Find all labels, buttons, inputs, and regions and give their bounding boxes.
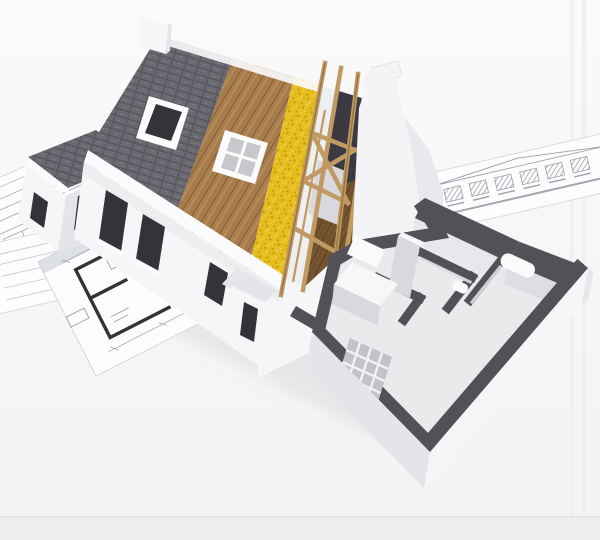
house-render	[0, 0, 600, 540]
bottom-strip	[0, 517, 600, 540]
bottom-strip-line	[0, 516, 600, 517]
render-canvas	[0, 0, 600, 540]
